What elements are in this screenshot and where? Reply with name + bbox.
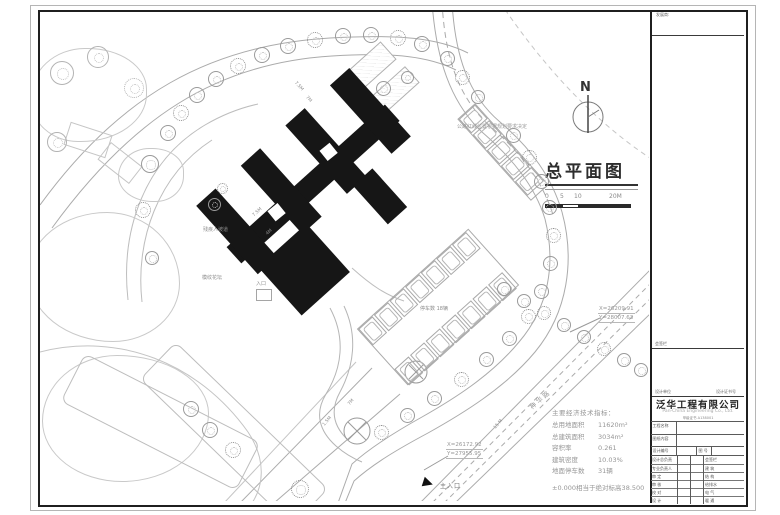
tree-icon xyxy=(497,282,511,296)
discipline-label: 给排水 xyxy=(704,480,744,488)
coordinate-marker: X=26172.92 Y=27955.95 xyxy=(446,441,483,459)
staff-role-label: 设 计 xyxy=(651,496,677,504)
tree-icon xyxy=(522,150,537,165)
tree-icon xyxy=(363,27,379,43)
scale-tick: 20M xyxy=(609,193,622,200)
titleblock-line xyxy=(652,348,744,349)
date-cell xyxy=(691,472,703,480)
signature-cell xyxy=(678,464,690,472)
tree-icon xyxy=(534,284,549,299)
car-icon xyxy=(394,292,415,313)
discipline-label: 会签栏 xyxy=(704,456,744,464)
tree-icon xyxy=(124,78,144,98)
tree-icon xyxy=(254,47,270,63)
staff-role-label: 设计总负责 xyxy=(651,456,677,464)
datum-note: ±0.000相当于绝对标高38.500 xyxy=(552,482,647,492)
date-cell xyxy=(691,480,703,488)
tree-icon xyxy=(479,352,494,367)
signature-cell xyxy=(678,456,690,464)
tree-icon xyxy=(455,70,470,85)
tree-icon xyxy=(543,256,558,271)
tree-icon xyxy=(208,198,221,211)
scale-tick: 0 xyxy=(545,193,549,200)
tree-icon xyxy=(517,294,531,308)
tree-icon xyxy=(617,353,631,367)
design-unit-label: 设计单位 xyxy=(655,389,671,395)
indicator-label: 建筑密度 xyxy=(552,455,598,467)
discipline-label: 暖 通 xyxy=(704,496,744,504)
content-label: 图纸内容 xyxy=(651,435,677,446)
signature-cell xyxy=(678,496,690,504)
staff-role-label: 审 核 xyxy=(651,480,677,488)
title-underline xyxy=(545,184,638,186)
car-icon xyxy=(477,290,498,311)
coordinate-x: X=26172.92 xyxy=(446,441,483,450)
car-icon xyxy=(461,304,482,325)
tree-icon xyxy=(546,228,561,243)
date-cell xyxy=(691,488,703,496)
car-icon xyxy=(378,306,399,327)
tree-icon xyxy=(542,200,557,215)
scale-segment xyxy=(579,204,631,208)
tree-icon xyxy=(307,32,323,48)
car-icon xyxy=(445,319,466,340)
car-icon xyxy=(425,264,446,285)
car-icon xyxy=(441,250,462,271)
date-cell xyxy=(691,456,703,464)
tree-icon xyxy=(225,442,241,458)
date-cell xyxy=(691,496,703,504)
tree-icon xyxy=(87,46,109,68)
car-icon xyxy=(414,347,435,368)
plan-world: N 总平面图 0 5 10 20M 公路红线位置根据规划要求决定 神华路 停车数… xyxy=(40,12,649,501)
tree-icon xyxy=(280,38,296,54)
entrance-label: 入口 xyxy=(256,280,266,287)
tree-icon xyxy=(597,342,611,356)
tree-icon xyxy=(506,128,521,143)
tree-icon xyxy=(335,28,351,44)
tree-icon xyxy=(47,132,67,152)
tree-icon xyxy=(414,36,430,52)
indicator-value: 11620m² xyxy=(598,420,628,432)
tree-icon xyxy=(202,422,218,438)
coordinate-marker: X=26209.91 Y=28007.63 xyxy=(598,305,635,323)
tree-icon xyxy=(401,71,414,84)
car-icon xyxy=(399,361,420,382)
cert-label: 设计证书号 xyxy=(716,389,736,395)
discipline-label: 结 构 xyxy=(704,472,744,480)
staff-role-label: 专业负责人 xyxy=(651,464,677,472)
tree-icon xyxy=(173,105,189,121)
content-value xyxy=(677,435,744,446)
car-icon xyxy=(456,236,477,257)
fig-no-label: 图 号 xyxy=(697,447,712,455)
titleblock-line xyxy=(652,35,744,36)
tree-icon xyxy=(427,391,442,406)
indicator-label: 总用地面积 xyxy=(552,420,598,432)
car-icon xyxy=(409,278,430,299)
tree-icon xyxy=(135,202,151,218)
tree-icon xyxy=(471,90,485,104)
titleblock-table: 工程名称 图纸内容 设计编号 图 号 设计总负责专业负责人审 定审 核校 对设 … xyxy=(651,421,744,503)
car-icon xyxy=(362,321,383,342)
tree-icon xyxy=(208,71,224,87)
project-name-value xyxy=(677,422,744,434)
indicator-label: 总建筑面积 xyxy=(552,432,598,444)
coordinate-y: Y=27955.95 xyxy=(446,450,483,459)
tree-icon xyxy=(577,330,591,344)
drawing-title: 总平面图 xyxy=(545,157,625,182)
economic-indicators: 主要经济技术指标： 总用地面积11620m² 总建筑面积3034m² 容积率0.… xyxy=(552,407,647,492)
signature-cell xyxy=(678,480,690,488)
main-entrance-label: 主入口 xyxy=(440,481,461,490)
tree-icon xyxy=(217,183,228,194)
tree-icon xyxy=(454,372,469,387)
north-label: N xyxy=(580,80,591,95)
scale-tick: 10 xyxy=(574,193,582,200)
tree-icon xyxy=(537,306,551,320)
north-arrow-icon xyxy=(573,95,603,133)
scale-bar: 0 5 10 20M xyxy=(545,193,635,213)
discipline-label: 电 气 xyxy=(704,488,744,496)
tree-icon xyxy=(376,81,391,96)
tree-icon xyxy=(160,125,176,141)
tree-icon xyxy=(400,408,415,423)
indicator-value: 31辆 xyxy=(598,466,613,478)
indicator-value: 10.03% xyxy=(598,455,623,467)
staff-role-label: 审 定 xyxy=(651,472,677,480)
sign-area-label: 会签栏 xyxy=(655,341,667,347)
indicator-value: 3034m² xyxy=(598,432,623,444)
flower-bed-label: 模纹花坛 xyxy=(202,274,222,281)
tree-icon xyxy=(502,331,517,346)
tree-icon xyxy=(145,251,159,265)
indicators-heading: 主要经济技术指标： xyxy=(552,407,647,417)
tree-icon xyxy=(440,51,455,66)
scale-segment xyxy=(562,204,579,208)
tree-icon xyxy=(557,318,571,332)
parking-count-label: 停车数 18辆 xyxy=(420,305,448,312)
ramp-label: 残疾人坡道 xyxy=(203,226,228,233)
date-cell xyxy=(691,464,703,472)
tree-icon xyxy=(521,309,536,324)
coordinate-y: Y=28007.63 xyxy=(598,314,635,323)
company-cert-no: 甲级证书 A138001 xyxy=(652,416,744,421)
coordinate-x: X=26209.91 xyxy=(598,305,635,314)
tree-icon xyxy=(141,155,159,173)
discipline-label: 建 筑 xyxy=(704,464,744,472)
tree-icon xyxy=(291,480,309,498)
design-no-value xyxy=(677,447,697,455)
signature-cell xyxy=(678,472,690,480)
tree-icon xyxy=(230,58,246,74)
indicator-value: 0.261 xyxy=(598,443,617,455)
site-plan-area: N 总平面图 0 5 10 20M 公路红线位置根据规划要求决定 神华路 停车数… xyxy=(40,12,649,501)
indicator-label: 容积率 xyxy=(552,443,598,455)
scale-tick: 5 xyxy=(560,193,564,200)
signature-cell xyxy=(678,488,690,496)
indicator-label: 地面停车数 xyxy=(552,466,598,478)
car-icon xyxy=(430,333,451,354)
company-name-en: Pan-China Engineering Co., Ltd. xyxy=(652,409,744,414)
fig-no-value xyxy=(712,447,744,455)
title-underline xyxy=(545,189,638,190)
tree-icon xyxy=(183,401,199,417)
design-no-label: 设计编号 xyxy=(651,447,677,455)
tree-icon xyxy=(390,30,406,46)
tree-icon xyxy=(374,425,389,440)
tree-icon xyxy=(634,363,648,377)
project-name-label: 工程名称 xyxy=(651,422,677,434)
developer-label: 发展商: xyxy=(656,12,669,18)
tree-icon xyxy=(534,174,549,189)
tree-icon xyxy=(189,87,205,103)
tree-icon xyxy=(50,61,74,85)
staff-role-label: 校 对 xyxy=(651,488,677,496)
drawing-sheet: { "drawing": { "title": "总平面图", "north_l… xyxy=(0,0,780,515)
